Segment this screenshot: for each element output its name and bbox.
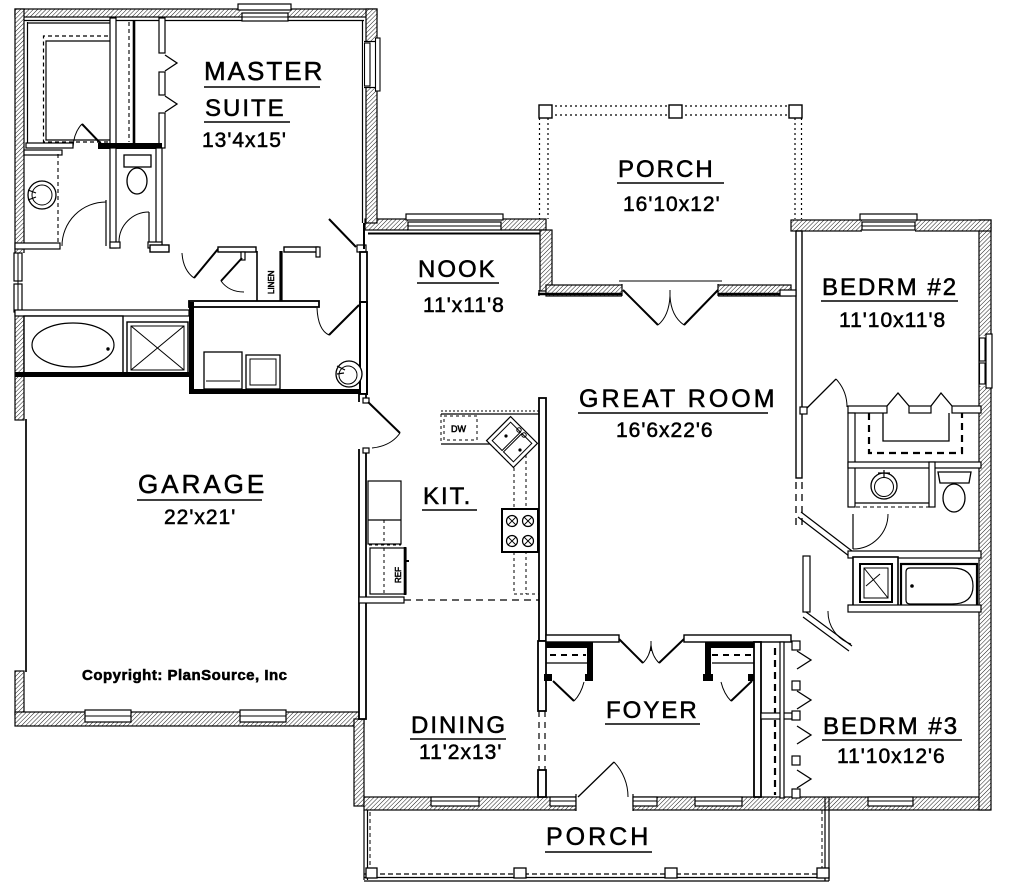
- svg-text:DINING: DINING: [411, 712, 507, 739]
- svg-text:MASTER: MASTER: [204, 56, 324, 86]
- svg-text:22'x21': 22'x21': [164, 506, 236, 529]
- svg-text:16'6x22'6: 16'6x22'6: [616, 419, 714, 442]
- svg-text:SUITE: SUITE: [205, 95, 286, 122]
- svg-text:NOOK: NOOK: [418, 256, 497, 283]
- svg-text:11'10x11'8: 11'10x11'8: [839, 309, 946, 332]
- svg-text:16'10x12': 16'10x12': [623, 193, 721, 216]
- svg-text:11'2x13': 11'2x13': [419, 741, 502, 764]
- svg-text:LINEN: LINEN: [267, 270, 276, 294]
- svg-text:KIT.: KIT.: [423, 483, 472, 510]
- svg-text:FOYER: FOYER: [606, 697, 699, 724]
- svg-text:PORCH: PORCH: [546, 823, 651, 851]
- svg-text:REF: REF: [394, 567, 403, 583]
- svg-text:DW: DW: [451, 424, 466, 434]
- svg-text:GREAT ROOM: GREAT ROOM: [579, 385, 778, 413]
- svg-text:BEDRM #3: BEDRM #3: [823, 713, 959, 740]
- svg-text:BEDRM #2: BEDRM #2: [822, 274, 958, 301]
- svg-text:11'x11'8: 11'x11'8: [423, 294, 505, 317]
- svg-text:13'4x15': 13'4x15': [202, 129, 287, 152]
- svg-text:Copyright: PlanSource, Inc: Copyright: PlanSource, Inc: [82, 667, 288, 684]
- svg-text:PORCH: PORCH: [618, 156, 715, 183]
- svg-text:11'10x12'6: 11'10x12'6: [837, 745, 946, 768]
- svg-text:GARAGE: GARAGE: [138, 469, 267, 499]
